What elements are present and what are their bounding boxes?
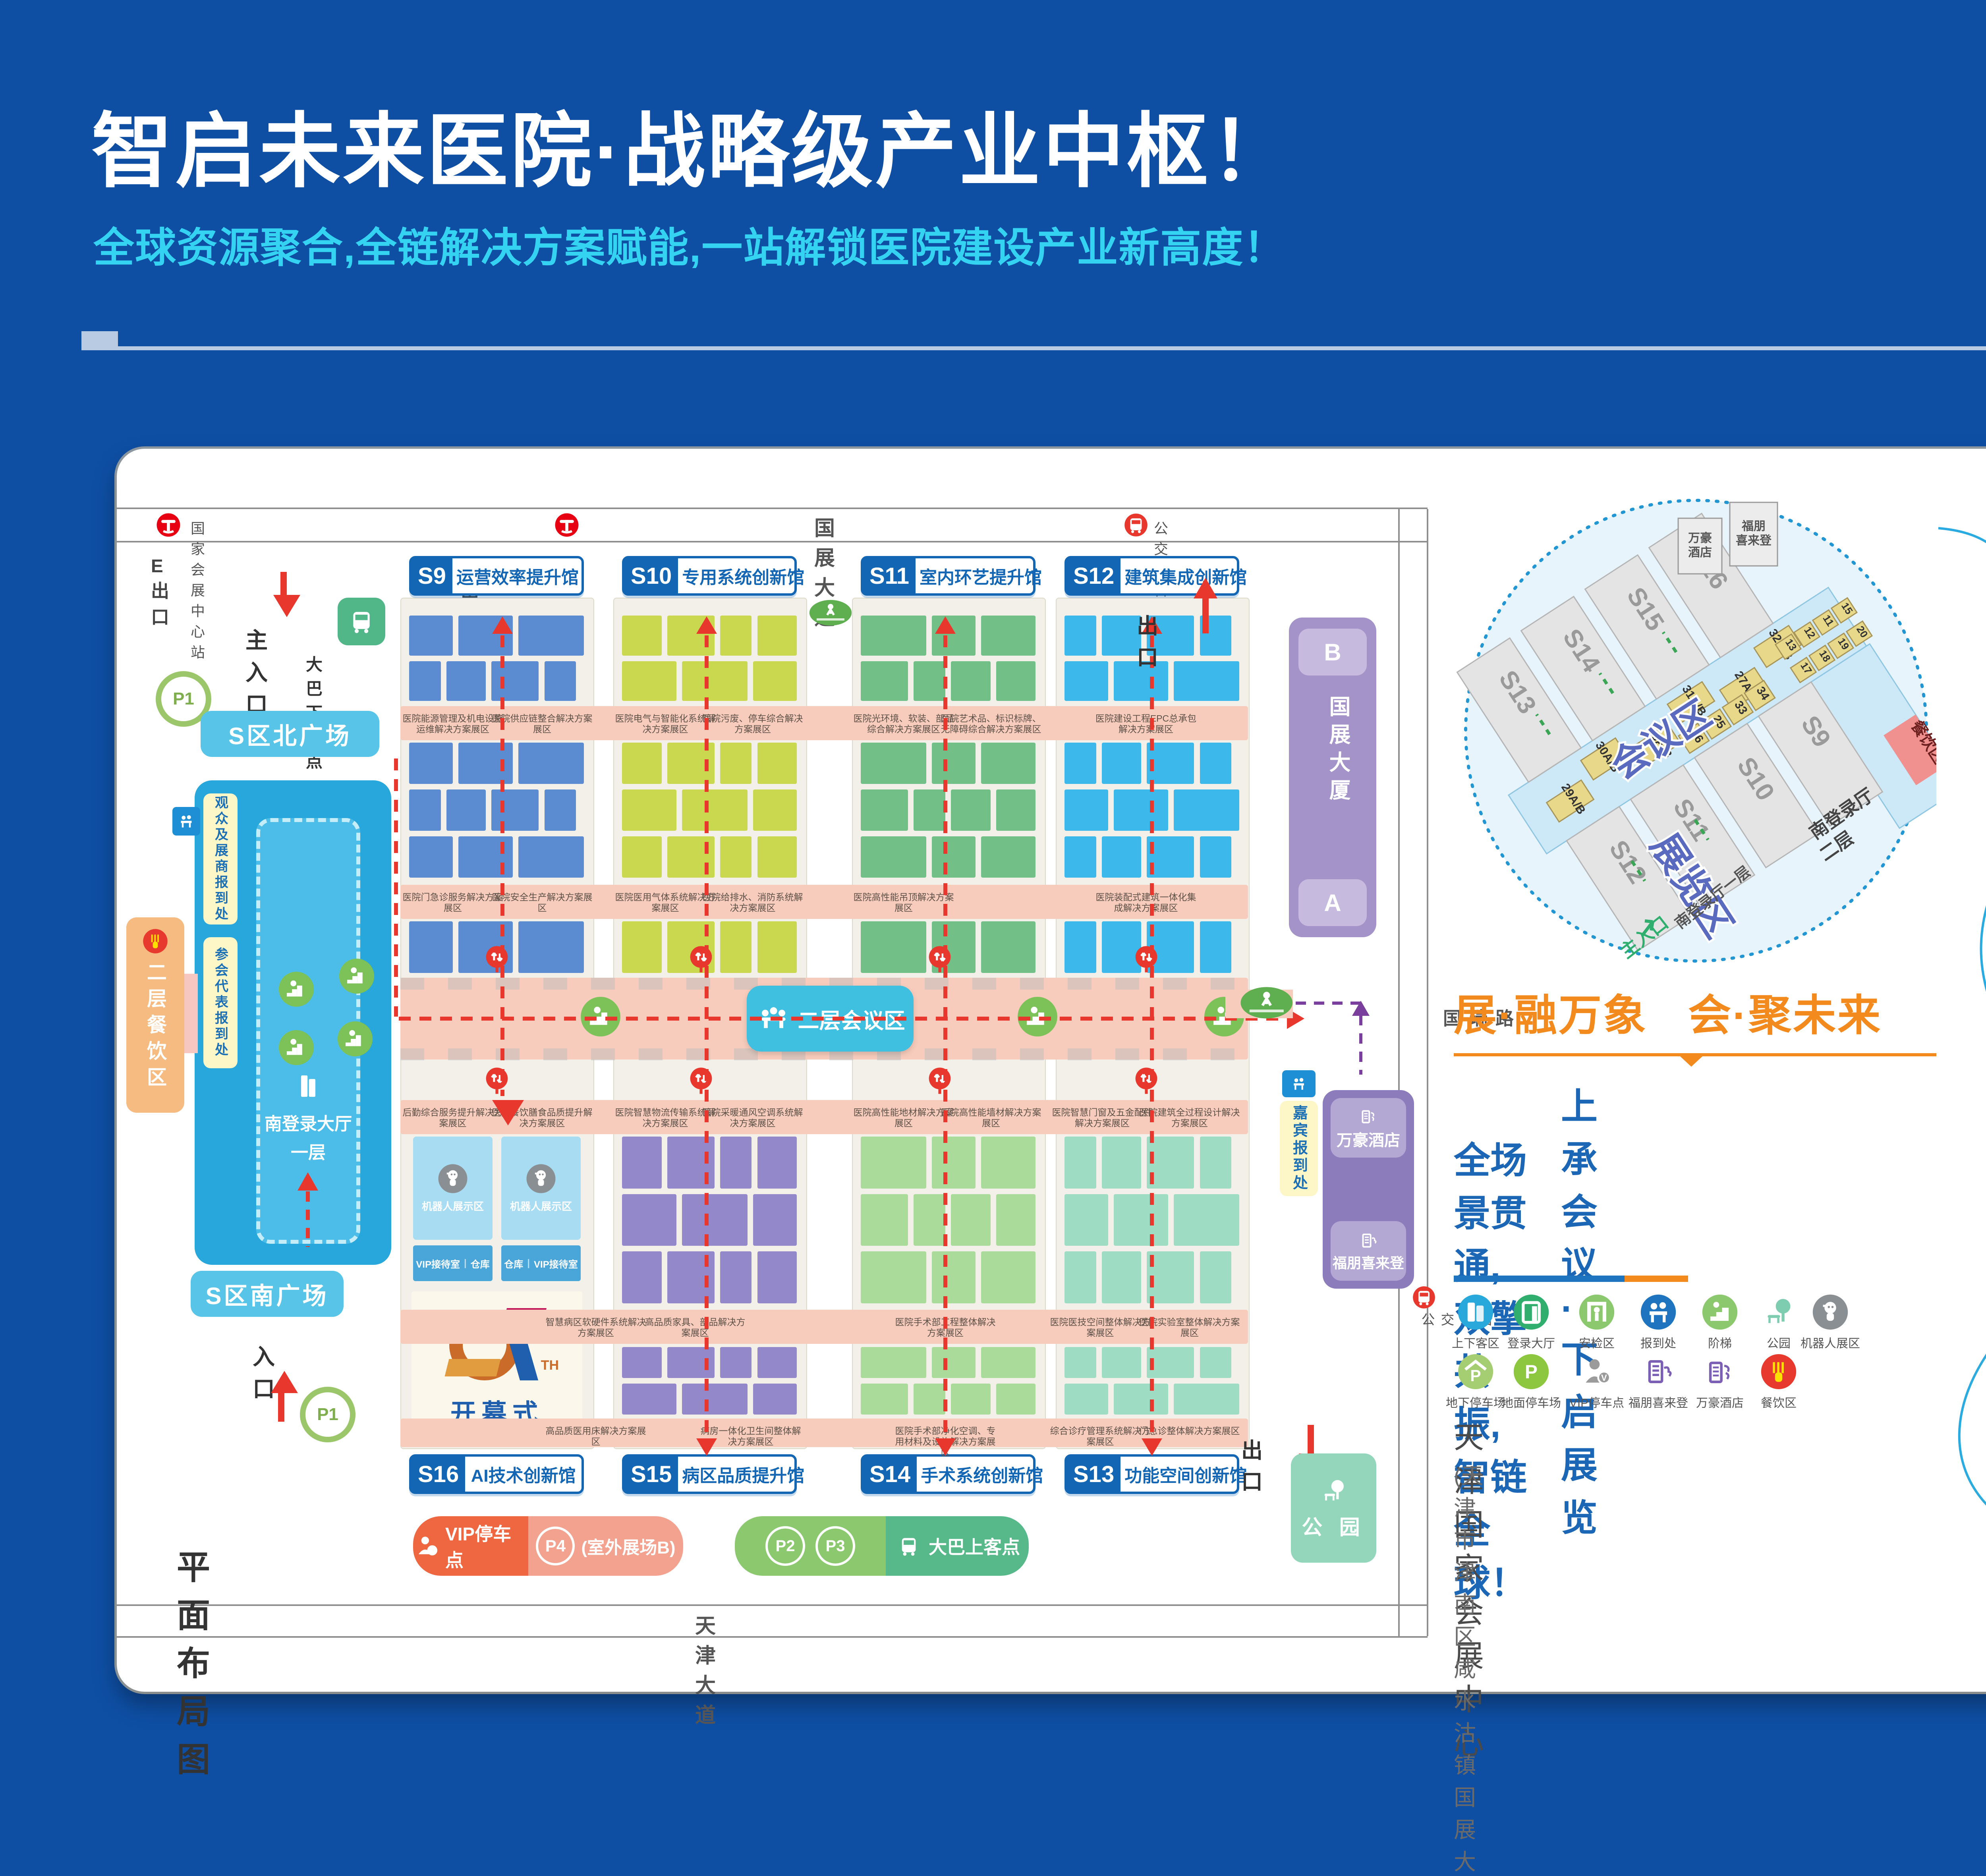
booth-block	[446, 661, 486, 701]
hall-badge-name: 手术系统创新馆	[917, 1457, 1047, 1492]
booth-block	[622, 616, 662, 656]
booth-block	[545, 789, 576, 831]
booth-block	[757, 616, 797, 656]
vip-room-label: VIP接待室	[416, 1256, 460, 1270]
zone-label: 高品质医用床解决方案展区	[542, 1426, 649, 1447]
booth-block	[757, 1137, 797, 1189]
delegate-reg-label: 参会代表报到处	[203, 937, 238, 1068]
booth-block	[1064, 661, 1108, 701]
legend-item-food: 餐饮区	[1749, 1353, 1808, 1411]
booth-block	[1102, 743, 1142, 784]
booth-block	[1064, 616, 1096, 656]
booth-block	[622, 1137, 662, 1189]
booth-block	[1174, 661, 1239, 701]
hall-badge-s9: S9运营效率提升馆	[409, 556, 584, 596]
booth-block	[861, 1347, 926, 1378]
vip-route-arrow	[1352, 1001, 1370, 1016]
bus-drop-icon	[338, 598, 385, 645]
hotel-block: 万豪酒店 福朋喜来登	[1323, 1090, 1414, 1289]
legend-label: 阶梯	[1690, 1334, 1750, 1351]
booth-block	[720, 1137, 752, 1189]
robot-zone-label: 机器人展示区	[510, 1199, 572, 1213]
p1-circle: P1	[300, 1387, 355, 1442]
vip-room-cell: VIP接待室|仓库	[413, 1245, 493, 1281]
legend-label: 地下停车场	[1446, 1393, 1505, 1411]
zone-label: 医院采暖通风空调系统解决方案展区	[699, 1107, 806, 1129]
booth-block	[1102, 836, 1142, 878]
booth-block	[409, 661, 441, 701]
legend-label: VIP停车点	[1567, 1393, 1627, 1411]
delegate-reg-tag: 参会代表报到处	[203, 937, 238, 1068]
booth-block	[518, 921, 584, 973]
booth-block	[757, 1251, 797, 1303]
crossing-icon	[808, 599, 853, 629]
booth-block	[1147, 1347, 1194, 1378]
vip-reg-label: 嘉宾报到处	[1280, 1101, 1318, 1196]
road-line	[117, 1636, 1428, 1638]
route-dash-v	[306, 1191, 310, 1247]
zone-label: 医院安全生产解决方案展区	[489, 892, 596, 913]
hall-badge-name: 建筑集成创新馆	[1121, 558, 1251, 593]
elevator-icon	[925, 944, 954, 975]
svg-text:P: P	[1525, 1362, 1538, 1383]
elevator-icon	[687, 1066, 715, 1096]
header-divider	[81, 346, 1986, 350]
booth-block	[720, 616, 752, 656]
vip-route-dash	[1359, 1015, 1362, 1075]
booth-block	[1102, 616, 1142, 656]
escalator-icon	[278, 971, 315, 1009]
zone-label: 智慧病区软硬件系统解决方案展区	[542, 1317, 649, 1338]
booth-block	[409, 921, 453, 973]
booth-block	[861, 921, 926, 973]
booth-block	[1102, 1137, 1142, 1189]
booth-block	[409, 743, 453, 784]
svg-text:酒店: 酒店	[1688, 546, 1712, 559]
booth-block	[409, 789, 441, 831]
legend-bar-blue	[1454, 1276, 1625, 1282]
page-title: 智启未来医院·战略级产业中枢！	[91, 85, 1294, 203]
visitor-reg-label: 观众及展商报到处	[203, 793, 238, 924]
booth-block	[996, 1384, 1036, 1415]
route-dash-v	[394, 759, 398, 1017]
reg-sign-icon	[172, 807, 200, 836]
svg-text:喜来登: 喜来登	[1736, 534, 1772, 547]
tower-block: B 国展大厦 A	[1289, 618, 1376, 937]
booth-block	[914, 1194, 945, 1246]
booth-block	[720, 743, 752, 784]
booth-block	[951, 1194, 991, 1246]
robot-zone: 机器人展示区	[501, 1137, 581, 1240]
booth-block	[753, 1384, 797, 1415]
metro-station-label: 国家会展中心站	[191, 517, 205, 662]
metro-icon	[554, 512, 580, 540]
route-arrow-up	[696, 616, 717, 634]
booth-block	[932, 743, 976, 784]
slogan-left: 展·融万象	[1454, 991, 1648, 1039]
road-line	[1427, 509, 1428, 1636]
zone-label: 医院给排水、消防系统解决方案展区	[699, 892, 806, 913]
booth-block	[622, 661, 676, 701]
p3-icon: P3	[815, 1526, 855, 1566]
booth-block	[1174, 1384, 1239, 1415]
main-entrance-label: 主入口	[245, 623, 271, 719]
opening-arrow-down	[492, 1100, 524, 1125]
park-label: 公 园	[1302, 1511, 1365, 1540]
th-label: TH	[541, 1358, 559, 1373]
booth-block	[1147, 743, 1194, 784]
vip-parking-label: VIP停车点	[445, 1520, 528, 1572]
booth-block	[861, 616, 926, 656]
booth-block	[1102, 1251, 1142, 1303]
hall-badge-num: S16	[411, 1457, 465, 1492]
p2-icon: P2	[765, 1526, 805, 1566]
exit-top-label: 出口	[1137, 608, 1158, 671]
walkway-strip	[184, 974, 198, 1053]
metro-icon	[156, 512, 181, 540]
legend-item-stairs: 阶梯	[1690, 1294, 1750, 1351]
booth-block	[622, 1347, 662, 1378]
booth-block	[932, 1137, 976, 1189]
exit-e-label: E出口	[151, 555, 169, 629]
legend-item-park: 公园	[1749, 1294, 1808, 1351]
vip-room-cell: 仓库|VIP接待室	[501, 1245, 581, 1281]
booth-block	[981, 743, 1036, 784]
park-block: 公 园	[1291, 1453, 1376, 1563]
booth-block	[1200, 1347, 1232, 1378]
zone-label: 高品质家具、部品解决方案展区	[641, 1317, 749, 1338]
booth-block	[757, 743, 797, 784]
booth-block	[1064, 1251, 1096, 1303]
route-arrow-down	[1142, 1438, 1162, 1456]
hall-badge-num: S14	[863, 1457, 917, 1492]
hall-badge-num: S13	[1067, 1457, 1121, 1492]
booth-block	[914, 1384, 945, 1415]
booth-block	[491, 661, 539, 701]
vip-reg-icon	[1282, 1070, 1316, 1097]
booth-block	[446, 789, 486, 831]
hall-badge-num: S12	[1067, 558, 1121, 593]
elevator-icon	[483, 1066, 511, 1096]
hall-badge-s14: S14手术系统创新馆	[861, 1454, 1036, 1494]
booth-block	[753, 1194, 797, 1246]
svg-text:V: V	[1601, 1373, 1607, 1383]
svg-text:V: V	[430, 1547, 435, 1554]
booth-block	[682, 1384, 748, 1415]
hall-badge-s10: S10专用系统创新馆	[622, 556, 797, 596]
booth-block	[720, 1347, 752, 1378]
booth-block	[861, 661, 908, 701]
booth-block	[753, 661, 797, 701]
booth-block	[981, 836, 1036, 878]
south-plaza: S区南广场	[191, 1271, 344, 1317]
booth-block	[932, 1251, 976, 1303]
booth-block	[932, 1347, 976, 1378]
booth-block	[622, 836, 662, 878]
escalator-icon	[278, 1029, 315, 1068]
hall-badge-num: S15	[624, 1457, 678, 1492]
booth-block	[981, 1137, 1036, 1189]
booth-block	[682, 1194, 748, 1246]
south-plaza-label: S区南广场	[191, 1271, 344, 1317]
fourpoints-label: 福朋喜来登	[1333, 1252, 1404, 1272]
zone-label: 医院高性能墙材解决方案展区	[937, 1107, 1045, 1129]
booth-block	[518, 616, 584, 656]
exit-bottom-label: 出口	[1241, 1433, 1263, 1496]
south-hall-label: 南登录大厅	[265, 1110, 352, 1135]
booth-block	[518, 743, 584, 784]
main-entrance-arrow	[273, 595, 300, 617]
booth-block	[861, 1251, 926, 1303]
zone-label: 医院装配式建筑一体化集成解决方案展区	[1092, 892, 1200, 913]
svg-text:P: P	[1470, 1366, 1481, 1385]
booth-block	[1064, 1137, 1096, 1189]
booth-block	[757, 1347, 797, 1378]
bus-stop-icon	[1412, 1286, 1435, 1311]
booth-block	[458, 836, 513, 878]
booth-block	[914, 789, 945, 831]
booth-block	[720, 1251, 752, 1303]
legend-label: 餐饮区	[1749, 1393, 1808, 1411]
svg-text:万豪: 万豪	[1688, 531, 1712, 545]
south-hall-arrow-up	[298, 1172, 318, 1191]
booth-block	[409, 616, 453, 656]
slogan-right: 会·聚未来	[1688, 991, 1882, 1039]
tower-a-label: A	[1298, 879, 1367, 926]
elevator-icon	[1132, 1066, 1161, 1096]
south-hall-floor: 一层	[291, 1138, 326, 1164]
robot-zone-label: 机器人展示区	[422, 1199, 484, 1213]
booth-block	[1147, 1251, 1194, 1303]
booth-block	[1200, 921, 1232, 973]
booth-block	[932, 836, 976, 878]
booth-block	[1064, 789, 1108, 831]
bus-pickup-label: 大巴上客点	[929, 1533, 1020, 1559]
legend-label: 报到处	[1629, 1334, 1688, 1351]
legend-bar-orange	[1625, 1276, 1688, 1282]
escalator-icon	[338, 958, 375, 996]
booth-block	[622, 1194, 676, 1246]
booth-block	[1064, 1384, 1108, 1415]
legend-item-hotel: 福朋喜来登	[1629, 1353, 1688, 1411]
booth-block	[861, 1384, 908, 1415]
north-plaza: S区北广场	[201, 711, 379, 757]
route-dash-v	[1150, 635, 1154, 1438]
booth-block	[1064, 743, 1096, 784]
bus-stop-icon	[1124, 513, 1148, 539]
booth-block	[1064, 1194, 1108, 1246]
venue-address: (天津市津南区咸水沽镇国展大道888号)	[1454, 1458, 1491, 1876]
hall-badge-s13: S13功能空间创新馆	[1064, 1454, 1239, 1494]
legend-vip-parking: VVIP停车点 P4 (室外展场B)	[413, 1516, 683, 1576]
booth-block	[981, 616, 1036, 656]
route-arrow-down	[935, 1438, 956, 1456]
legend-label: 万豪酒店	[1690, 1393, 1750, 1411]
page-subtitle: 全球资源聚合,全链解决方案赋能,一站解锁医院建设产业新高度！	[93, 214, 1285, 274]
booth-block	[757, 836, 797, 878]
elevator-icon	[925, 1066, 954, 1096]
booth-block	[622, 743, 662, 784]
tower-label: 国展大厦	[1322, 695, 1354, 807]
booth-block	[1174, 789, 1239, 831]
legend-label: 公园	[1749, 1334, 1808, 1351]
hall-badge-num: S9	[411, 558, 452, 593]
south-entrance-stem	[278, 1390, 284, 1422]
crossing-icon	[1239, 986, 1294, 1022]
marriott-label: 万豪酒店	[1337, 1127, 1400, 1150]
booth-block	[682, 661, 748, 701]
legend-item-door: 登录大厅	[1501, 1294, 1561, 1351]
booth-block	[1114, 1194, 1168, 1246]
elevator-icon	[483, 944, 511, 975]
booth-block	[1064, 1347, 1096, 1378]
elevator-icon	[1132, 944, 1161, 975]
booth-block	[1064, 836, 1096, 878]
booth-block	[622, 1251, 662, 1303]
north-plaza-label: S区北广场	[201, 711, 379, 757]
south-entrance-arrow	[271, 1371, 298, 1393]
legend-label: 上下客区	[1446, 1334, 1505, 1351]
booth-block	[622, 1384, 676, 1415]
storage-label: 仓库	[504, 1256, 523, 1270]
hall-badge-name: AI技术创新馆	[465, 1457, 582, 1492]
legend-item-building: 上下客区	[1446, 1294, 1505, 1351]
hall-badge-s15: S15病区品质提升馆	[622, 1454, 797, 1494]
route-arrow-up	[935, 616, 956, 634]
zone-label: 医院供应链整合解决方案展区	[489, 713, 596, 735]
vip-reg-tag: 嘉宾报到处	[1280, 1101, 1318, 1196]
booth-block	[981, 1251, 1036, 1303]
tower-b-label: B	[1298, 629, 1367, 676]
circle-map: 餐饮区 S13S14S15S16S12S11S10S929A/B30A/B28A…	[1456, 490, 1936, 971]
booth-block	[996, 789, 1036, 831]
booth-block	[951, 1384, 991, 1415]
legend-label: 机器人展区	[1801, 1334, 1860, 1351]
vip-room-label: VIP接待室	[534, 1256, 578, 1270]
legend-item-hotel2: 万豪酒店	[1690, 1353, 1750, 1411]
storage-label: 仓库	[471, 1256, 490, 1270]
zone-label: 医院建设工程EPC总承包解决方案展区	[1092, 713, 1200, 735]
booth-block	[1102, 1347, 1142, 1378]
road-tianjin-label: 天 津 大 道	[695, 1609, 726, 1728]
booth-block	[951, 789, 991, 831]
booth-block	[861, 789, 908, 831]
hall-badge-num: S11	[863, 558, 916, 593]
booth-block	[1200, 743, 1232, 784]
booth-block	[491, 789, 539, 831]
booth-block	[861, 836, 926, 878]
booth-block	[914, 661, 945, 701]
legend-label: 福朋喜来登	[1629, 1393, 1688, 1411]
legend-label: 登录大厅	[1501, 1334, 1561, 1351]
dining-label: 二层餐饮区	[141, 962, 170, 1093]
booth-block	[409, 836, 453, 878]
booth-block	[981, 921, 1036, 973]
legend-item-robot: 机器人展区	[1801, 1294, 1860, 1351]
booth-block	[545, 661, 576, 701]
hall-badge-s16: S16AI技术创新馆	[409, 1454, 584, 1494]
hall-badge-name: 运营效率提升馆	[452, 558, 583, 593]
booth-block	[757, 921, 797, 973]
legend-item-gate: 安检区	[1567, 1294, 1627, 1351]
floor-plan-title: 平面布局图	[177, 1541, 216, 1781]
booth-block	[1147, 836, 1194, 878]
booth-block	[720, 836, 752, 878]
booth-block	[1147, 1137, 1194, 1189]
zone-label: 医院艺术品、标识标牌、无障碍综合解决方案展区	[937, 713, 1045, 735]
booth-block	[861, 1137, 926, 1189]
main-entrance-stem	[280, 572, 287, 600]
hall-badge-name: 病区品质提升馆	[678, 1457, 808, 1492]
booth-block	[622, 921, 662, 973]
zone-label: 医院污废、停车综合解决方案展区	[699, 713, 806, 735]
legend-label: 地面停车场	[1501, 1393, 1561, 1411]
road-line	[1398, 509, 1400, 1636]
route-arrow-down	[696, 1438, 717, 1456]
booth-block	[1114, 789, 1168, 831]
exit-arrow-stem	[1308, 1425, 1314, 1457]
booth-block	[996, 661, 1036, 701]
booth-block	[1200, 1137, 1232, 1189]
legend-parking-bus: P2 P3 大巴上客点	[735, 1516, 1029, 1576]
p4-icon: P4	[536, 1527, 575, 1565]
booth-block	[753, 789, 797, 831]
booth-block	[682, 789, 748, 831]
exit-arrow-stem	[1202, 598, 1209, 633]
hall-badge-s11: S11室内环艺提升馆	[861, 556, 1036, 596]
route-arrow-up	[492, 616, 513, 634]
booth-block	[861, 743, 926, 784]
dining-block: 二层餐饮区	[126, 917, 184, 1113]
hall-badge-name: 功能空间创新馆	[1121, 1457, 1251, 1492]
booth-block	[981, 1347, 1036, 1378]
visitor-reg-tag: 观众及展商报到处	[203, 793, 238, 924]
legend-item-desk: 报到处	[1629, 1294, 1688, 1351]
slogan: 展·融万象 会·聚未来	[1454, 981, 1950, 1056]
zone-label: 医院高性能吊顶解决方案展区	[850, 892, 957, 913]
hall-badge-num: S10	[624, 558, 678, 593]
booth-block	[720, 921, 752, 973]
booth-block	[996, 1194, 1036, 1246]
road-line	[117, 541, 1428, 542]
booth-block	[622, 789, 676, 831]
legend-item-pcircle: P地面停车场	[1501, 1353, 1561, 1411]
booth-block	[1200, 1251, 1232, 1303]
robot-zone: 机器人展示区	[413, 1137, 493, 1240]
route-dash-h	[254, 1017, 1287, 1021]
road-line	[117, 1604, 1428, 1606]
booth-block	[1064, 921, 1096, 973]
escalator-icon	[337, 1021, 373, 1059]
route-dash-v	[500, 635, 504, 1096]
hall-badge-name: 室内环艺提升馆	[916, 558, 1046, 593]
booth-block	[1114, 1384, 1168, 1415]
hall-badge-name: 专用系统创新馆	[678, 558, 808, 593]
booth-block	[951, 661, 991, 701]
poster: 智启未来医院·战略级产业中枢！ 全球资源聚合,全链解决方案赋能,一站解锁医院建设…	[0, 0, 1986, 1876]
elevator-icon	[687, 944, 715, 975]
booth-block	[1174, 1194, 1239, 1246]
svg-text:福朋: 福朋	[1741, 520, 1766, 533]
booth-block	[1200, 836, 1232, 878]
legend-item-vip: VVIP停车点	[1567, 1353, 1627, 1411]
legend-label: 安检区	[1567, 1334, 1627, 1351]
exit-arrow-up	[1194, 578, 1217, 598]
circle-map-svg: 餐饮区 S13S14S15S16S12S11S10S929A/B30A/B28A…	[1456, 490, 1936, 971]
booth-block	[861, 1194, 908, 1246]
p4-note: (室外展场B)	[581, 1533, 675, 1559]
booth-block	[458, 743, 513, 784]
